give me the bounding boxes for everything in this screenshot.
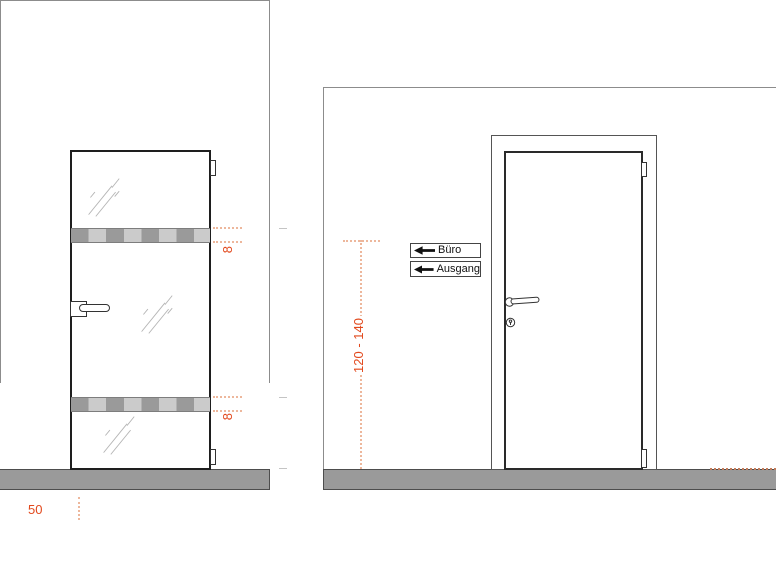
floor-dimension-label: 50 <box>28 503 42 516</box>
arrow-left-icon <box>414 246 435 255</box>
glass-reflection-icon <box>138 292 183 337</box>
sign-height-dimension-label: 120 - 140 <box>351 316 366 375</box>
sign-buero: Büro <box>410 243 481 258</box>
stripe-width-dimension-label: 8 <box>221 246 234 253</box>
door-hinge <box>210 160 216 176</box>
floor-dimension-extension-line <box>710 468 776 470</box>
sign-label: Ausgang <box>437 264 480 275</box>
glass-reflection-icon <box>100 413 145 458</box>
dimension-line <box>213 410 242 412</box>
arrow-left-icon <box>414 265 434 274</box>
dimension-line <box>78 497 80 520</box>
extension-tick <box>279 397 287 398</box>
glass-reflection-icon <box>85 175 130 220</box>
glass-door-handle <box>79 304 110 312</box>
extension-tick <box>279 228 287 229</box>
extension-tick <box>279 468 287 469</box>
dimension-line <box>213 396 242 398</box>
door-handle-icon <box>503 295 543 309</box>
glass-stripe-band-lower <box>71 397 210 412</box>
sign-label: Büro <box>438 245 461 256</box>
door-hinge <box>210 449 216 465</box>
right-floor <box>323 469 776 490</box>
sign-ausgang: Ausgang <box>410 261 481 277</box>
door-lock-icon <box>505 317 516 328</box>
door-hinge <box>641 162 647 177</box>
dimension-line <box>213 227 242 229</box>
door-hinge <box>641 449 647 468</box>
door-marking-diagram: 8 8 50 Büro Ausgang 120 - <box>0 0 776 582</box>
dimension-line <box>213 241 242 243</box>
left-floor <box>0 469 270 490</box>
door-leaf <box>504 151 643 470</box>
glass-stripe-band-upper <box>71 228 210 243</box>
stripe-width-dimension-label: 8 <box>221 413 234 420</box>
